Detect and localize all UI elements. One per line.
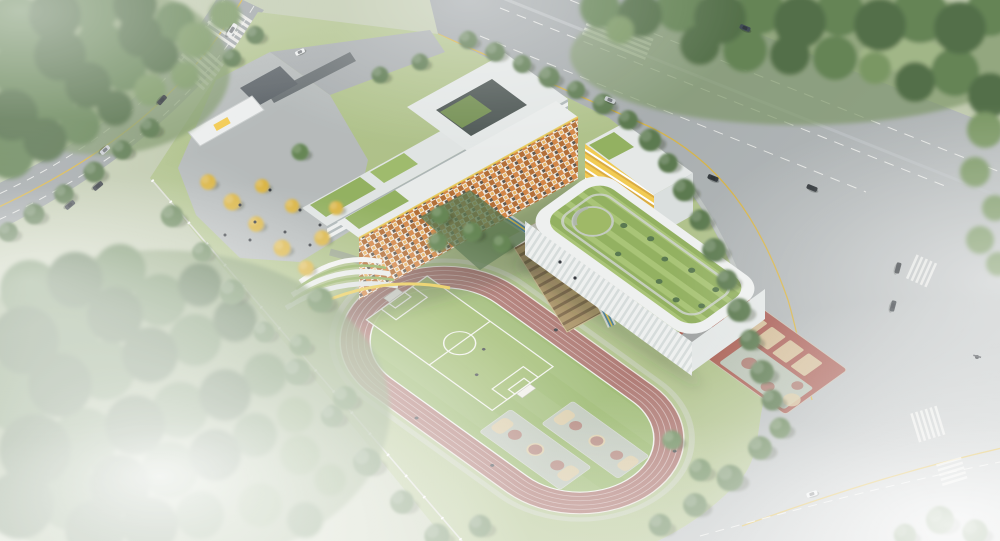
campus-aerial-rendering: Aerial rendering of a school campus with…: [0, 0, 1000, 541]
haze-overlay: [0, 0, 1000, 541]
